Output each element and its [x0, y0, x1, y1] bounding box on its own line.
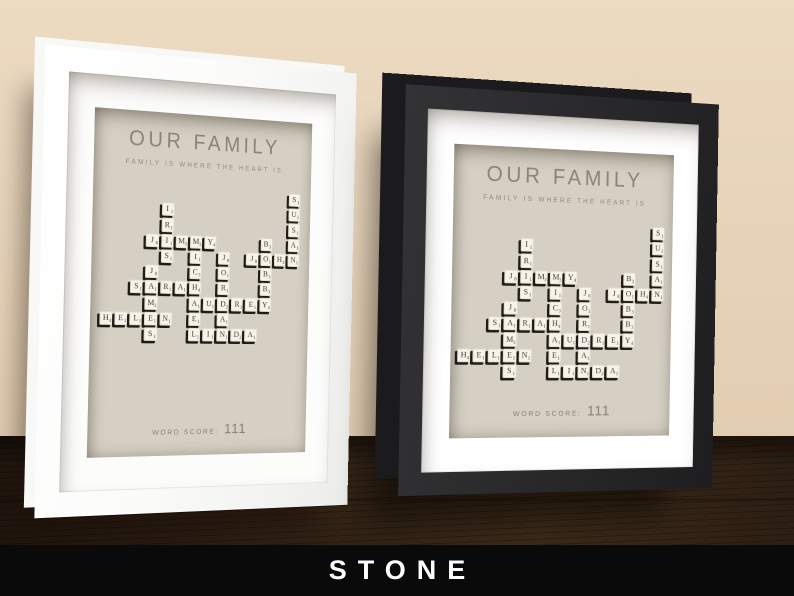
scrabble-tile: I1	[549, 286, 562, 300]
scrabble-tile: U1	[288, 208, 300, 222]
brand-banner: STONE	[0, 545, 794, 596]
scrabble-tile: R1	[578, 318, 591, 332]
word-score-value: 111	[587, 403, 611, 419]
black-frame: OUR FAMILY FAMILY IS WHERE THE HEART IS …	[402, 84, 744, 496]
scrabble-tile: M3	[175, 234, 188, 248]
scrabble-tile: D2	[578, 333, 591, 347]
scrabble-tile: N1	[651, 288, 664, 302]
scrabble-tile: A1	[188, 297, 201, 311]
scrabble-tile: N1	[216, 328, 229, 342]
scrabble-tile: I1	[563, 364, 576, 378]
product-photo-scene: OUR FAMILY FAMILY IS WHERE THE HEART IS …	[0, 0, 794, 596]
scrabble-tile: U1	[203, 297, 216, 311]
artwork-title: OUR FAMILY	[129, 125, 281, 160]
scrabble-tile: A1	[534, 317, 547, 331]
scrabble-tile: J8	[579, 287, 592, 301]
scrabble-tile: R1	[160, 280, 173, 294]
scrabble-tile: E1	[188, 312, 201, 326]
scrabble-tile: S1	[289, 193, 301, 207]
artwork-title: OUR FAMILY	[486, 161, 643, 193]
scrabble-tile: B3	[623, 272, 636, 286]
scrabble-tile: S1	[652, 257, 665, 271]
scrabble-tile: D2	[217, 297, 230, 311]
scrabble-tile: H4	[189, 281, 202, 295]
scrabble-tile: L1	[488, 348, 502, 362]
scrabble-tile: S1	[160, 249, 173, 263]
artwork-print: OUR FAMILY FAMILY IS WHERE THE HEART IS …	[449, 144, 674, 439]
scrabble-tile: N1	[518, 348, 531, 362]
black-frame-border: OUR FAMILY FAMILY IS WHERE THE HEART IS …	[398, 84, 719, 496]
scrabble-tile: A1	[651, 273, 664, 287]
scrabble-tile: S1	[488, 316, 502, 330]
scrabble-tile: B3	[259, 283, 271, 297]
scrabble-tile: I1	[161, 233, 174, 247]
brand-banner-label: STONE	[318, 555, 477, 586]
white-frame-border: OUR FAMILY FAMILY IS WHERE THE HEART IS …	[34, 44, 356, 518]
scrabble-tile: S1	[130, 280, 143, 294]
scrabble-tile: J8	[608, 287, 621, 301]
white-frame-mat: OUR FAMILY FAMILY IS WHERE THE HEART IS …	[59, 71, 336, 492]
scrabble-tile: S1	[519, 285, 532, 299]
scrabble-tile: J8	[246, 252, 258, 266]
scrabble-tile: A1	[504, 317, 518, 331]
scrabble-tile: N1	[578, 364, 591, 378]
scrabble-tile: C3	[189, 266, 202, 280]
scrabble-tile: A1	[607, 364, 620, 378]
scrabble-tile: Y4	[622, 334, 635, 348]
word-score-label: WORD SCORE:	[152, 427, 219, 437]
word-score-value: 111	[224, 421, 247, 437]
scrabble-tile: M3	[550, 270, 563, 284]
scrabble-tile: E1	[503, 348, 517, 362]
scrabble-tile: H4	[274, 253, 286, 267]
scrabble-tile: M3	[535, 270, 548, 284]
artwork-subtitle: FAMILY IS WHERE THE HEART IS	[126, 158, 283, 174]
scrabble-tile: S1	[288, 224, 300, 238]
scrabble-tile: B3	[260, 268, 272, 282]
scrabble-tile: A1	[217, 313, 230, 327]
scrabble-tile: M3	[190, 235, 203, 249]
scrabble-tile: L1	[188, 328, 201, 342]
scrabble-tile: U1	[563, 333, 576, 347]
scrabble-tile: B3	[622, 318, 635, 332]
scrabble-tile: O1	[260, 253, 272, 267]
scrabble-tile: E1	[607, 334, 620, 348]
scrabble-tile: J8	[146, 233, 159, 247]
artwork-subtitle: FAMILY IS WHERE THE HEART IS	[483, 194, 646, 207]
scrabble-tile: N1	[287, 254, 299, 268]
scrabble-tile: A1	[145, 280, 158, 294]
scrabble-tile: E1	[473, 348, 487, 362]
scrabble-tile: J8	[218, 251, 231, 265]
scrabble-tile: H4	[99, 311, 113, 325]
scrabble-tile: O1	[218, 266, 231, 280]
scrabble-tile: A1	[288, 239, 300, 253]
scrabble-tile: D2	[230, 328, 243, 342]
scrabble-tile: J8	[145, 264, 158, 278]
scrabble-tile: M3	[145, 296, 158, 310]
scrabble-tile: B3	[622, 303, 635, 317]
scrabble-tile: S1	[503, 364, 517, 378]
scrabble-tile: S1	[144, 327, 157, 341]
scrabble-tile: J8	[504, 301, 518, 315]
scrabble-tile: A1	[578, 349, 591, 363]
scrabble-tile: R1	[519, 317, 532, 331]
scrabble-tile: I1	[520, 269, 533, 283]
scrabble-tile: E1	[548, 349, 561, 363]
scrabble-tile: I1	[202, 328, 215, 342]
scrabble-tile: I1	[520, 238, 533, 252]
white-frame: OUR FAMILY FAMILY IS WHERE THE HEART IS …	[40, 44, 392, 518]
scrabble-tile: A1	[174, 281, 187, 295]
scrabble-tile: C3	[549, 302, 562, 316]
scrabble-tile: Y4	[259, 298, 271, 311]
scrabble-tile: E1	[245, 298, 257, 312]
scrabble-tile: L1	[129, 311, 142, 325]
scrabble-tile: H4	[637, 288, 650, 302]
scrabble-tile: H4	[549, 317, 562, 331]
crossword-grid: S1I1U1R1S1J8I1M3M3Y4B3A1S1I1J8J8O1H4N1J8…	[457, 220, 667, 380]
scrabble-tile: A1	[244, 328, 256, 341]
scrabble-tile: N1	[159, 312, 172, 326]
scrabble-tile: J8	[505, 269, 519, 283]
word-score-label: WORD SCORE:	[513, 409, 582, 418]
black-frame-mat: OUR FAMILY FAMILY IS WHERE THE HEART IS …	[421, 109, 699, 473]
scrabble-tile: R1	[593, 333, 606, 347]
word-score: WORD SCORE: 111	[152, 421, 247, 439]
scrabble-tile: Y4	[565, 271, 578, 285]
scrabble-tile: A1	[549, 333, 562, 347]
scrabble-tile: Y4	[204, 235, 217, 249]
scrabble-tile: E1	[144, 311, 157, 325]
scrabble-tile: M3	[503, 332, 517, 346]
scrabble-tile: I1	[162, 202, 175, 216]
scrabble-tile: U1	[652, 242, 665, 256]
scrabble-tile: R1	[161, 218, 174, 232]
crossword-grid: S1I1U1R1S1J8I1M3M3Y4B3A1S1I1J8J8O1H4N1J8…	[99, 183, 303, 344]
scrabble-tile: O1	[579, 302, 592, 316]
scrabble-tile: R1	[520, 254, 533, 268]
word-score: WORD SCORE: 111	[513, 403, 611, 420]
scrabble-tile: S1	[652, 227, 665, 241]
scrabble-tile: E1	[114, 311, 127, 325]
artwork-print: OUR FAMILY FAMILY IS WHERE THE HEART IS …	[87, 107, 313, 458]
scrabble-tile: R1	[231, 298, 244, 312]
scrabble-tile: R1	[217, 282, 230, 296]
scrabble-tile: H4	[457, 348, 471, 362]
scrabble-tile: O1	[623, 287, 636, 301]
scrabble-tile: D2	[592, 364, 605, 378]
scrabble-tile: B3	[260, 237, 272, 251]
scrabble-tile: I1	[189, 250, 202, 264]
scrabble-tile: L1	[548, 364, 561, 378]
